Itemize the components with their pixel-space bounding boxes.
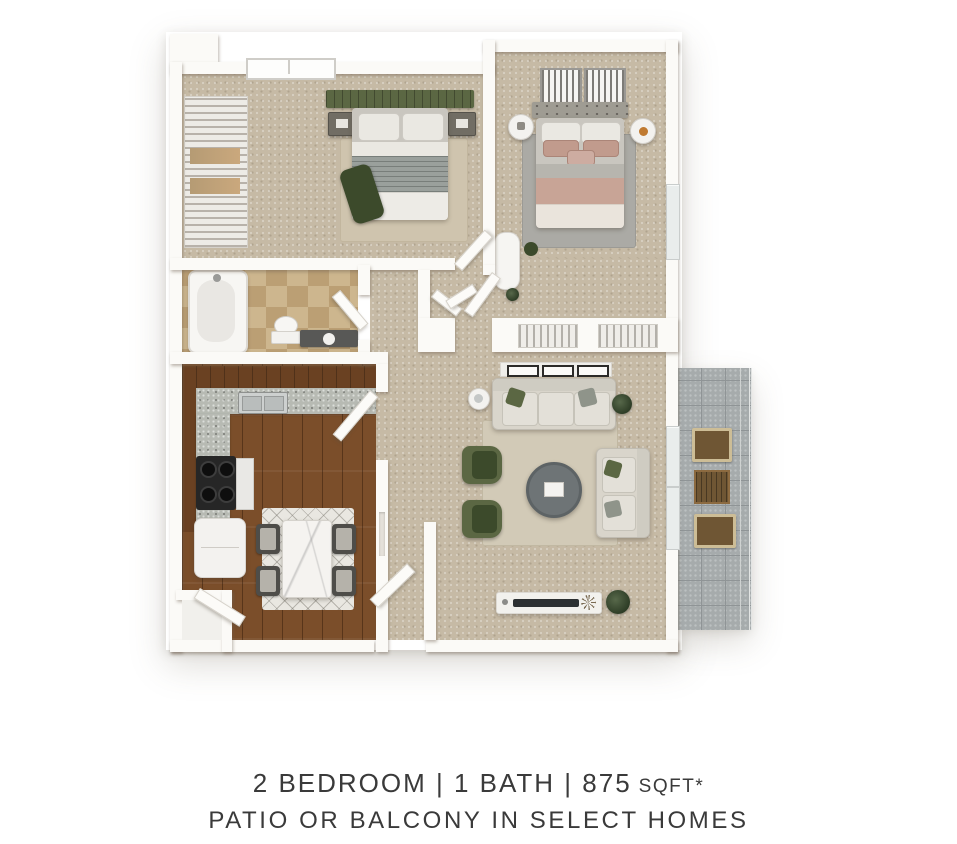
bathtub [188,270,248,354]
caption: 2 BEDROOM | 1 BATH | 875SQFT* PATIO OR B… [0,768,957,835]
bedroom2-headboard [532,102,628,118]
burner [218,486,235,503]
bedroom2-bed [536,118,624,228]
console-tray [507,365,539,377]
bedroom1-headboard [326,90,474,108]
bathtub-basin [197,280,235,342]
sink-basin [242,396,262,411]
kitchen-sink [238,392,288,414]
wall-top-bedroom2 [483,40,678,52]
sofa-console-table [500,362,612,377]
bedroom2-side-table-right [630,118,656,144]
vanity-sink [323,333,335,345]
oven-door [236,458,254,510]
dining-chair [256,566,280,596]
window-mullion [288,60,290,74]
fridge-door-split [201,547,239,548]
armchair-seat [472,505,497,533]
loveseat [596,448,650,538]
stove [196,456,252,510]
bedroom1-closet-shelf2 [190,178,240,194]
patio-chair [694,514,736,548]
bed-blanket [536,178,624,204]
caption-line-2: PATIO OR BALCONY IN SELECT HOMES [0,807,957,835]
armchair-seat [472,451,497,479]
chair-cushion [260,528,276,550]
closet-slat-door [518,324,578,348]
wall-hall-closet [418,270,430,318]
wall-entry-stub [424,522,436,640]
sliding-patio-door [666,426,680,550]
patio-railing [740,368,752,630]
armchair [462,500,502,538]
bed-pillow [358,113,400,141]
loveseat-pillow-gray [604,500,623,519]
burner [218,461,235,478]
wall-bedroom1-south [170,258,455,270]
bedroom2-pouf [524,242,538,256]
patio-chair [692,428,732,462]
caption-specs: 2 BEDROOM | 1 BATH | 875 [253,768,632,798]
bathroom-vanity [300,330,358,347]
bedroom2-window [666,184,680,260]
bathtub-faucet [213,274,221,282]
wall-bath-east-upper [358,265,370,295]
nightstand-decor [336,119,348,128]
dining-chair [256,524,280,554]
coffee-table-tray [544,482,564,497]
wall-kitchen-east [376,460,388,652]
closet-band [492,318,678,352]
armchair [462,446,502,484]
wall-bottom-left [170,640,374,652]
stove-cooktop [196,456,236,510]
kitchen-left-cabinets [182,388,196,532]
glass-vase [474,394,483,403]
closet-band-left [418,318,455,352]
bedroom1-closet-shelf [190,148,240,164]
refrigerator [194,518,246,578]
living-plant-corner [612,394,632,414]
floor-plan-page: 2 BEDROOM | 1 BATH | 875SQFT* PATIO OR B… [0,0,957,844]
wall-bottom-right [426,640,678,652]
toilet-tank [271,331,301,344]
bedroom1-nightstand-right [448,112,476,136]
dried-plant-starburst [581,595,596,610]
caption-line-1: 2 BEDROOM | 1 BATH | 875SQFT* [0,768,957,799]
sliding-door-rail [667,486,679,488]
bedroom2-vent-grille-right [584,68,626,104]
patio-table [694,470,730,504]
chair-cushion [336,528,352,550]
wall-kitchen-stub [376,364,388,392]
living-side-table [468,388,490,410]
tv-side-plant [606,590,630,614]
dining-chair [332,524,356,554]
burner [200,461,217,478]
burner [200,486,217,503]
wall-bath-south [170,352,388,364]
sofa-cushion [538,392,574,426]
sofa [492,378,616,430]
tv-console [496,592,602,614]
bed-pillow [402,113,444,141]
console-decor [502,599,508,605]
tv [513,599,579,607]
wall-topleft-bump [170,34,218,62]
bedroom1-window [246,58,336,80]
sink-basin [264,396,284,411]
pass-through-slot [379,512,385,556]
closet-slat-door [598,324,658,348]
nightstand-decor [456,119,468,128]
caption-sqft: SQFT* [639,776,705,797]
console-tray [577,365,609,377]
coffee-table [526,462,582,518]
bedroom2-vent-grille-left [540,68,582,104]
chair-cushion [260,570,276,592]
table-decor [517,122,525,130]
kitchen-upper-cabinets [182,366,376,388]
loveseat-back [637,449,649,537]
dining-table [282,520,332,598]
bed-duvet [536,204,624,228]
bedroom2-plant [506,288,519,301]
bedroom2-side-table-left [508,114,534,140]
dining-chair [332,566,356,596]
bed-sheet [352,142,448,156]
chair-cushion [336,570,352,592]
bed-band [536,164,624,178]
bedroom1-closet-doors [184,96,248,248]
amber-vase [639,127,648,136]
console-tray [542,365,574,377]
